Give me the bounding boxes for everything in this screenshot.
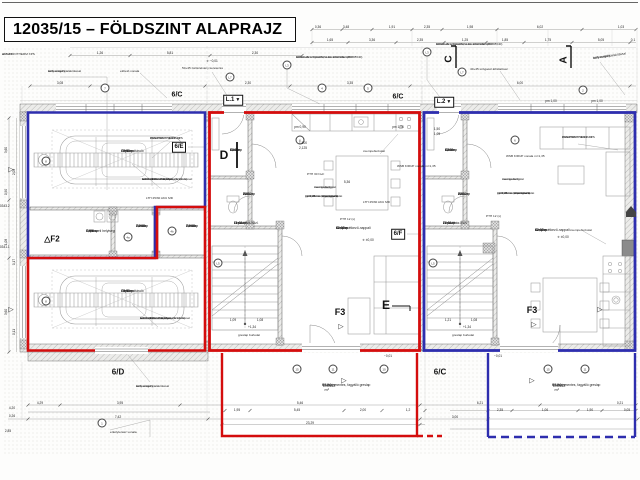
- dimension-text: 1,50: [434, 127, 440, 131]
- grid-bubble: 11: [329, 365, 338, 374]
- marker-F2: △F2: [44, 235, 60, 244]
- dimension-text: 1,98: [467, 25, 473, 29]
- marker-F3: F3: [527, 305, 538, 315]
- label-line: PTH 12 (s): [486, 215, 501, 219]
- dimension-text: ✛ −0,01: [206, 59, 218, 63]
- open-triangle-icon: ▷: [529, 378, 534, 385]
- marker-text: 6/E: [174, 143, 183, 151]
- marker-E: E: [382, 298, 390, 312]
- dimension-text: 3,48: [343, 25, 349, 29]
- grid-bubble: 8: [42, 297, 51, 306]
- dimension-text: 0,36: [315, 25, 321, 29]
- dimension-text: 23,29: [306, 421, 314, 425]
- label-line: m=1,25 cm (impregnált): [305, 195, 338, 199]
- label-line: LTH 25/30 AKU MD: [363, 201, 390, 205]
- dimension-text: 2,30: [252, 51, 258, 55]
- dimension-text: 1,06: [542, 408, 548, 412]
- label-line: Greslap: [445, 148, 457, 152]
- label-line: Greslap: [86, 229, 98, 233]
- label-line: mennyezetig: [314, 186, 332, 190]
- dimension-text: 2,35: [497, 408, 503, 412]
- label-line: süllyesztett kialakítással: [136, 385, 169, 389]
- dimension-text: 1,08: [257, 318, 263, 322]
- label-line: Greslap: [121, 149, 133, 153]
- grid-bubble: L3: [283, 61, 292, 70]
- dimension-text: 6,21: [477, 401, 483, 405]
- annotation-overlay: G2.01Gépkocsitároló19,50 m²GreslapG1.01G…: [0, 0, 640, 480]
- dimension-text: pm 1,06: [392, 125, 404, 129]
- dimension-text: 5,81: [167, 51, 173, 55]
- dimension-text: 1,90: [587, 408, 593, 412]
- label-line: kültéri alu árnyékoló, tokszerkezettel (…: [296, 56, 362, 60]
- label-line: LTH 25/30 AKU MD: [146, 197, 173, 201]
- label-line: süllyesztett kialakítással: [48, 70, 81, 74]
- dimension-text: 1,2: [406, 408, 410, 412]
- dimension-text: 1,65: [327, 38, 333, 42]
- dimension-text: 3,00: [452, 415, 458, 419]
- grid-bubble: 7: [101, 84, 110, 93]
- dimension-text: 1,08: [471, 318, 477, 322]
- grid-bubble: 4: [318, 84, 327, 93]
- dimension-text: 3,08: [57, 81, 63, 85]
- open-triangle-icon: ▷: [8, 167, 13, 174]
- grid-bubble: 4b: [168, 227, 177, 236]
- dimension-text: 1,09: [230, 318, 236, 322]
- label-line: Greslap: [243, 192, 255, 196]
- open-triangle-icon: ▷: [8, 307, 13, 314]
- dimension-text: 1,91: [389, 25, 395, 29]
- marker-D: D: [220, 148, 229, 162]
- dimension-text: ✛ ±0,00: [362, 238, 374, 242]
- label-line: csempeburkolat: [570, 229, 592, 233]
- label-line: PREMIUM P d=15 cm: [562, 136, 592, 140]
- marker-6C: 6/C: [393, 94, 404, 101]
- dimension-text: 0,11: [12, 329, 16, 335]
- dimension-text: 2,35: [417, 38, 423, 42]
- label-line: mennyezetig: [502, 178, 520, 182]
- grid-bubble: 15: [293, 365, 302, 374]
- dimension-text: 5,05: [598, 38, 604, 42]
- dimension-text: 1,21: [445, 318, 451, 322]
- open-triangle-icon: ▷: [531, 322, 536, 329]
- label-line: autóbeállók vonalában, rácsfedéssel: [140, 317, 190, 321]
- section-letter-C: C: [444, 55, 455, 62]
- marker-text: 6/F: [394, 230, 403, 238]
- floorplan-sheet: G2.01Gépkocsitároló19,50 m²GreslapG1.01G…: [0, 0, 640, 480]
- dimension-text: 0,90: [4, 189, 8, 195]
- dimension-text: #10341.1: [0, 245, 10, 249]
- marker-6D: 6/D: [112, 368, 124, 377]
- dimension-text: pm 1,00: [545, 99, 557, 103]
- label-line: PTH 12 (s): [340, 218, 355, 222]
- label-line: PREMIUM P d=15 cm: [150, 137, 180, 141]
- marker-L1: L.1▼: [223, 95, 243, 106]
- open-triangle-icon: ▷: [338, 324, 343, 331]
- label-line: d=7 cm: [2, 53, 12, 57]
- label-line: Greslap: [186, 224, 198, 228]
- label-line: Greslap: [535, 228, 547, 232]
- label-line: m=1,25 cm (impregnált): [497, 192, 530, 196]
- label-line: Greslap: [230, 148, 242, 152]
- dimension-text: 1,75: [545, 38, 551, 42]
- dimension-text: 4,20: [9, 406, 15, 410]
- grid-bubble: 8: [42, 157, 51, 166]
- dimension-text: ✛ ±0,00: [557, 235, 569, 239]
- label-line: WSB KIRUP vonala m=1,35: [397, 165, 436, 169]
- grid-bubble: L5: [429, 259, 438, 268]
- label-line: 50+45 zártszelvény keretezés: [182, 67, 223, 71]
- dimension-text: 7,42: [115, 415, 121, 419]
- dimension-text: 1,05: [434, 132, 440, 136]
- label-line: PTH 30 N+F: [307, 173, 324, 177]
- dimension-text: 5,46: [297, 401, 303, 405]
- dimension-text: 1,95: [234, 408, 240, 412]
- marker-F3: F3: [335, 307, 346, 317]
- label-line: süllyesztett kialakítással: [593, 52, 626, 60]
- dimension-text: 5,36: [344, 180, 350, 184]
- dimension-text: 1,85: [502, 38, 508, 42]
- down-triangle-icon: ▼: [235, 98, 240, 103]
- grid-bubble: 15: [544, 365, 553, 374]
- dimension-text: 0,05: [624, 408, 630, 412]
- dimension-text: #10343.2: [0, 204, 10, 208]
- dimension-text: pm 0,90: [294, 125, 306, 129]
- label-line: Greslap: [136, 224, 148, 228]
- grid-bubble: L7: [458, 68, 467, 77]
- dimension-text: +1,34: [248, 325, 256, 329]
- dimension-text: 3,35: [347, 81, 353, 85]
- dimension-text: 2,85: [5, 429, 11, 433]
- section-letter-A: A: [559, 56, 570, 63]
- label-line: greslap burkolat: [452, 334, 474, 338]
- label-line: greslap burkolat: [238, 334, 260, 338]
- down-triangle-icon: ▼: [446, 100, 451, 105]
- dimension-text: 0,17: [12, 259, 16, 265]
- marker-text: L.1: [226, 96, 235, 104]
- label-line: Greslap: [234, 221, 246, 225]
- marker-6C: 6/C: [172, 92, 183, 99]
- dimension-text: 6,00: [517, 81, 523, 85]
- dimension-text: 3,36: [369, 38, 375, 42]
- label-line: WSB KIRUP vonala m=1,35: [506, 155, 545, 159]
- label-line: csempeburkolat: [363, 150, 385, 154]
- dimension-text: 0,21: [617, 401, 623, 405]
- label-line: autóbeállók vonalában, rácsfedéssel: [142, 178, 192, 182]
- dimension-text: 3,60: [4, 147, 8, 153]
- dimension-text: 1,26: [97, 51, 103, 55]
- label-line: Greslap: [443, 221, 455, 225]
- label-line: Csúszásmentes, fagyálló greslap: [552, 383, 600, 388]
- dimension-text: 0,26: [9, 414, 15, 418]
- dimension-text: 6,02: [537, 25, 543, 29]
- drawing-title: 12035/15 – FÖLDSZINT ALAPRAJZ: [4, 17, 296, 42]
- dimension-text: −0,01: [384, 354, 392, 358]
- dimension-text: 1,03: [618, 25, 624, 29]
- marker-text: L.2: [437, 98, 446, 106]
- dimension-text: 2,00: [360, 408, 366, 412]
- grid-bubble: L3: [423, 48, 432, 57]
- dimension-text: +1,34: [463, 325, 471, 329]
- dimension-text: 2,35: [424, 25, 430, 29]
- dimension-text: pm 1,00: [591, 99, 603, 103]
- grid-bubble: L5: [214, 259, 223, 268]
- label-line: előtető vonala: [120, 70, 139, 74]
- grid-bubble: 6: [511, 136, 520, 145]
- label-line: Greslap: [336, 226, 348, 230]
- marker-6E: 6/E: [172, 142, 186, 153]
- label-line: Greslap: [458, 192, 470, 196]
- dimension-text: 2,30: [245, 81, 251, 85]
- dimension-text: −0,01: [494, 354, 502, 358]
- label-line: Greslap: [121, 289, 133, 293]
- dimension-text: 2,125: [299, 146, 307, 150]
- grid-bubble: 4a: [124, 233, 133, 242]
- marker-L2: L.2▼: [434, 97, 454, 108]
- open-triangle-icon: ▷: [597, 307, 602, 314]
- open-triangle-icon: ▷: [341, 378, 346, 385]
- label-line: 40+45 szögacél áthidalóval: [470, 68, 507, 72]
- grid-bubble: 5: [364, 84, 373, 93]
- grid-bubble: 1: [98, 419, 107, 428]
- grid-bubble: 2: [579, 86, 588, 95]
- marker-6F: 6/F: [391, 229, 405, 240]
- dimension-text: 3,95: [117, 401, 123, 405]
- grid-bubble: 11: [581, 365, 590, 374]
- dimension-text: 4,29: [37, 401, 43, 405]
- grid-bubble: L7: [226, 73, 235, 82]
- grid-bubble: 10: [380, 365, 389, 374]
- dimension-text: 0,1: [631, 38, 635, 42]
- dimension-text: 1,500: [299, 141, 307, 145]
- label-line: erkélyterasz vonala: [110, 431, 137, 435]
- marker-6C: 6/C: [434, 368, 446, 377]
- dimension-text: 5,45: [294, 408, 300, 412]
- label-line: kültéri alu árnyékoló, tokszerkezettel (…: [436, 43, 502, 47]
